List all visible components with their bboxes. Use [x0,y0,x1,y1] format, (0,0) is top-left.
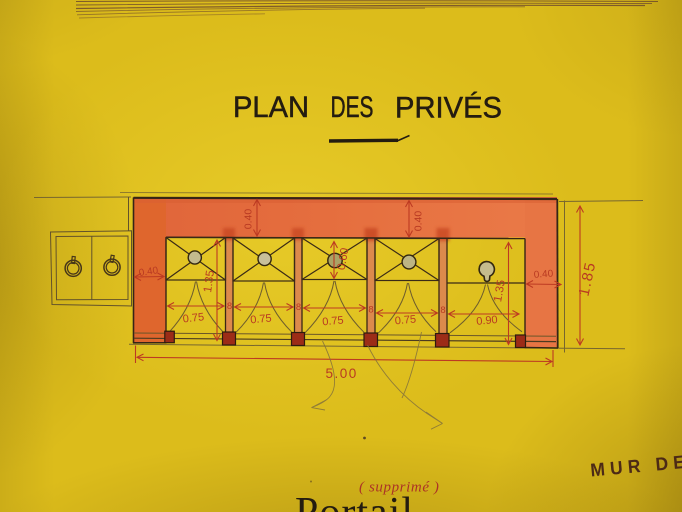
svg-text:DES: DES [331,91,374,124]
svg-text:8: 8 [440,305,445,316]
svg-text:0.75: 0.75 [394,313,416,327]
svg-text:0.40: 0.40 [242,209,254,230]
svg-text:1.35: 1.35 [202,270,217,294]
svg-text:PLAN: PLAN [233,91,309,124]
svg-text:5.00: 5.00 [326,366,358,381]
svg-text:0.75: 0.75 [322,314,344,328]
svg-text:0.40: 0.40 [412,211,424,232]
svg-text:1.85: 1.85 [576,260,600,298]
svg-text:8: 8 [368,305,373,316]
svg-text:1.35: 1.35 [492,279,508,303]
svg-text:8: 8 [227,301,232,312]
svg-text:0.75: 0.75 [182,311,205,325]
svg-text:0.90: 0.90 [476,314,498,328]
svg-text:MUR DE: MUR DE [589,451,682,481]
svg-text:PRIVÉS: PRIVÉS [395,92,502,125]
svg-text:0.75: 0.75 [250,312,272,326]
svg-text:Portail: Portail [295,490,414,512]
svg-text:8: 8 [296,302,301,313]
svg-text:0.40: 0.40 [533,268,554,280]
